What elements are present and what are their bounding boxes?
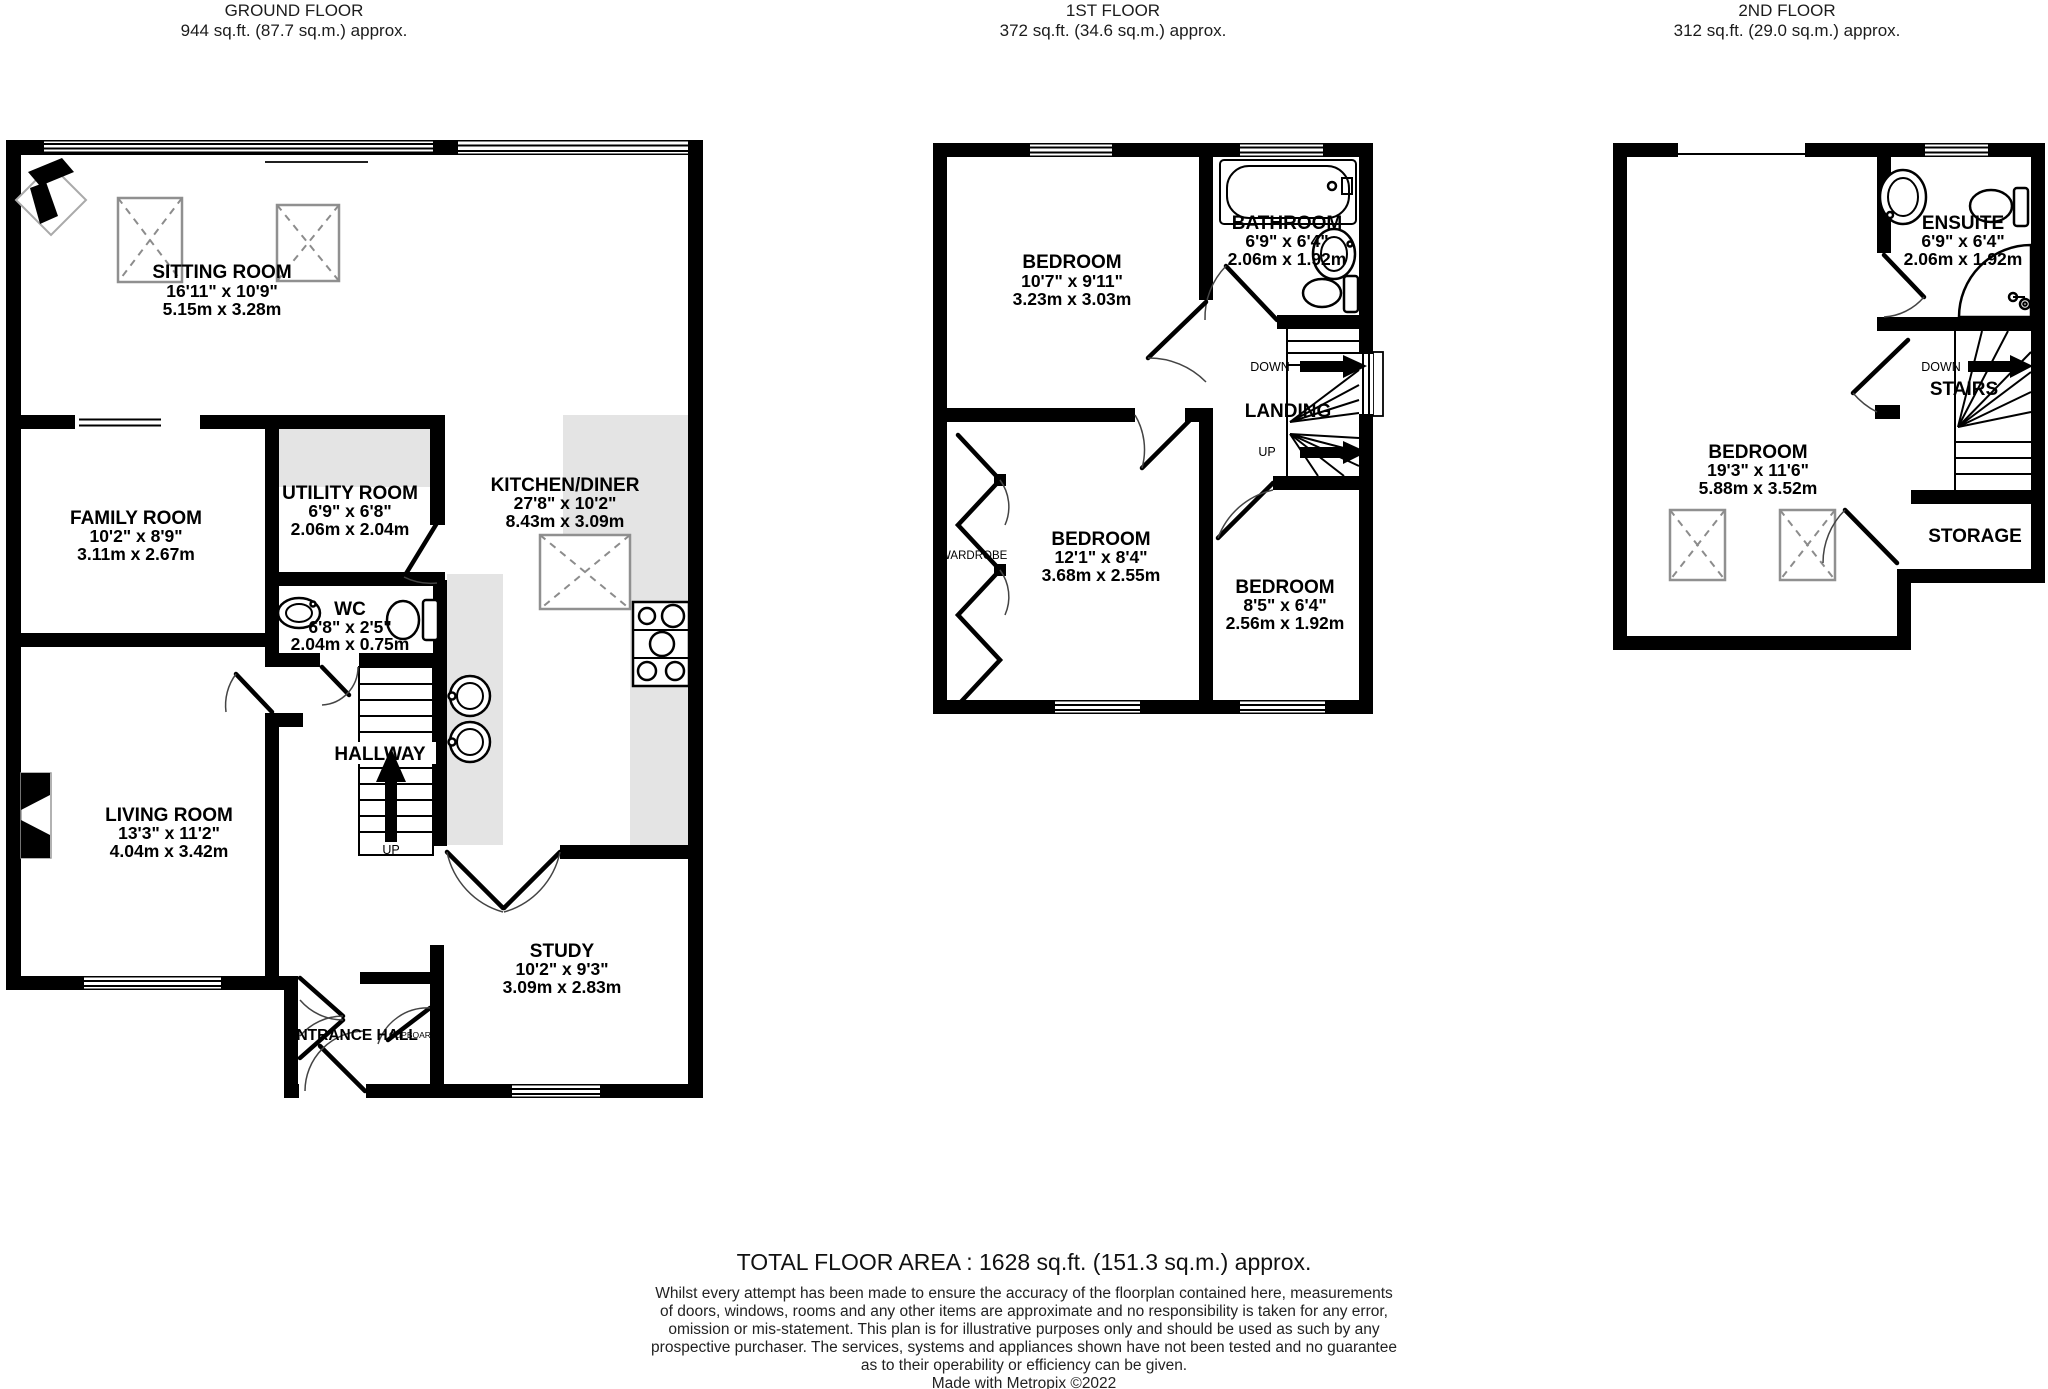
sitting-room-name: SITTING ROOM	[152, 262, 291, 283]
bedroom2-metric: 3.68m x 2.55m	[1042, 565, 1161, 585]
disclaimer-line: Whilst every attempt has been made to en…	[0, 1285, 2048, 1303]
bedroom-imperial: 19'3" x 11'6"	[1707, 460, 1809, 480]
kitchen-diner-imperial: 27'8" x 10'2"	[514, 493, 617, 513]
family-room-imperial: 10'2" x 8'9"	[89, 526, 182, 546]
up-label: UP	[382, 843, 399, 857]
up-label: UP	[1258, 445, 1275, 459]
floorplan-ground: SITTING ROOM 16'11" x 10'9" 5.15m x 3.28…	[6, 140, 703, 1098]
toilet-icon	[1303, 276, 1358, 312]
landing-label: LANDING	[1245, 401, 1332, 422]
skylight-icon	[540, 535, 630, 609]
second-doors	[1823, 255, 1924, 563]
bedroom3-imperial: 8'5" x 6'4"	[1243, 595, 1326, 615]
wardrobe-icon	[958, 435, 1009, 705]
ensuite-metric: 2.06m x 1.92m	[1904, 249, 2023, 269]
family-room-metric: 3.11m x 2.67m	[77, 544, 195, 564]
study-imperial: 10'2" x 9'3"	[515, 959, 608, 979]
stairs-label: STAIRS	[1930, 379, 1998, 400]
footer: TOTAL FLOOR AREA : 1628 sq.ft. (151.3 sq…	[0, 1249, 2048, 1389]
bedroom1-imperial: 10'7" x 9'11"	[1021, 271, 1123, 291]
down-label: DOWN	[1250, 360, 1290, 374]
storage-label: STORAGE	[1928, 526, 2022, 547]
cupboard-label: CUPBOARD	[389, 1030, 437, 1040]
living-room-imperial: 13'3" x 11'2"	[118, 823, 220, 843]
down-arrow-icon	[1968, 355, 2033, 378]
disclaimer-line: of doors, windows, rooms and any other i…	[0, 1303, 2048, 1321]
floorplan-page: GROUND FLOOR 944 sq.ft. (87.7 sq.m.) app…	[0, 0, 2048, 1389]
bathroom-metric: 2.06m x 1.92m	[1228, 249, 1347, 269]
fireplace-icon	[21, 773, 51, 858]
study-metric: 3.09m x 2.83m	[503, 977, 622, 997]
total-floor-area: TOTAL FLOOR AREA : 1628 sq.ft. (151.3 sq…	[0, 1249, 2048, 1276]
kitchen-diner-metric: 8.43m x 3.09m	[506, 511, 625, 531]
bedroom-metric: 5.88m x 3.52m	[1699, 478, 1818, 498]
stove-icon	[633, 602, 689, 686]
disclaimer-line: omission or mis-statement. This plan is …	[0, 1321, 2048, 1339]
skylight-icon	[1780, 510, 1835, 580]
floorplan-first: BEDROOM 10'7" x 9'11" 3.23m x 3.03m BATH…	[933, 143, 1383, 714]
ensuite-imperial: 6'9" x 6'4"	[1921, 231, 2004, 251]
sitting-room-metric: 5.15m x 3.28m	[163, 299, 282, 319]
floorplan-second: ENSUITE 6'9" x 6'4" 2.06m x 1.92m BEDROO…	[1613, 143, 2045, 650]
down-arrow-icon	[1300, 355, 1367, 378]
bedroom1-name: BEDROOM	[1022, 252, 1121, 273]
ground-room-labels: SITTING ROOM 16'11" x 10'9" 5.15m x 3.28…	[70, 262, 640, 1044]
bedroom3-metric: 2.56m x 1.92m	[1226, 613, 1345, 633]
living-room-metric: 4.04m x 3.42m	[110, 841, 229, 861]
metropix-credit: Made with Metropix ©2022	[0, 1375, 2048, 1389]
ensuite-sink-icon	[1880, 170, 1926, 224]
bedroom2-imperial: 12'1" x 8'4"	[1054, 547, 1147, 567]
bedroom1-metric: 3.23m x 3.03m	[1013, 289, 1132, 309]
floorplan-drawing: SITTING ROOM 16'11" x 10'9" 5.15m x 3.28…	[0, 0, 2048, 1389]
second-stairs	[1955, 331, 2033, 490]
down-label: DOWN	[1921, 360, 1961, 374]
hallway-label: HALLWAY	[334, 744, 425, 765]
wc-metric: 2.04m x 0.75m	[291, 634, 410, 654]
disclaimer-line: prospective purchaser. The services, sys…	[0, 1339, 2048, 1357]
bathroom-imperial: 6'9" x 6'4"	[1245, 231, 1328, 251]
disclaimer-line: as to their operability or efficiency ca…	[0, 1357, 2048, 1375]
wardrobe-label: WARDROBE	[940, 550, 1008, 562]
utility-room-imperial: 6'9" x 6'8"	[308, 501, 391, 521]
north-arrow-icon	[16, 158, 86, 235]
sitting-room-imperial: 16'11" x 10'9"	[166, 281, 278, 301]
skylight-icon	[1670, 510, 1725, 580]
utility-room-metric: 2.06m x 2.04m	[291, 519, 410, 539]
